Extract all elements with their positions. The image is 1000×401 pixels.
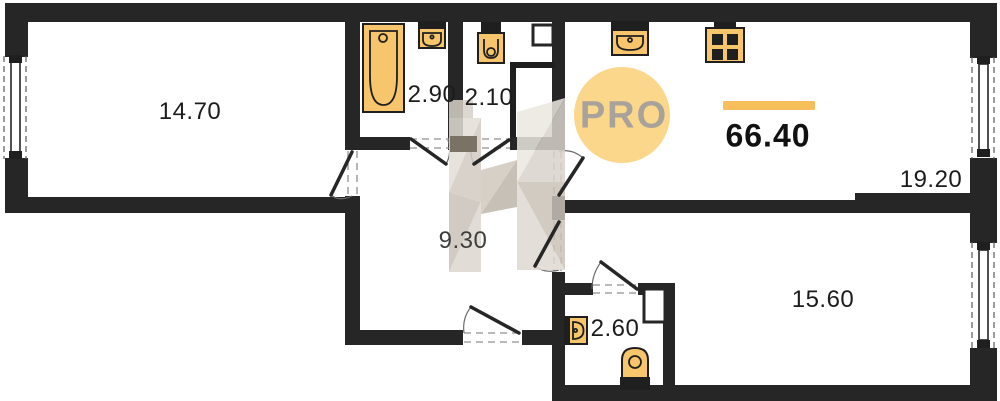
room-area-bathroom: 2.90 (408, 81, 457, 109)
room-area-wc2: 2.60 (591, 315, 640, 343)
pro-logo-text: PRO (580, 95, 668, 138)
accent-bar (723, 101, 815, 110)
stove-icon (706, 22, 744, 62)
window-living (4, 55, 26, 159)
floor-plan: 14.70 2.90 2.10 9.30 19.20 15.60 2.60 66… (0, 0, 1000, 401)
room-area-bedroom: 15.60 (792, 286, 855, 314)
room-area-hallway: 9.30 (439, 227, 488, 255)
door-post (450, 136, 477, 152)
window-bedroom (972, 242, 994, 349)
room-area-living: 14.70 (159, 98, 222, 126)
bathtub-icon (363, 24, 404, 112)
floor-plan-drawing (0, 0, 1000, 401)
total-area: 66.40 (725, 118, 810, 155)
kitchen-sink-icon (612, 22, 648, 55)
bath-sink-icon (419, 22, 445, 48)
wc2-sink-icon (565, 317, 587, 344)
toilet-icon (478, 22, 504, 63)
wc2-toilet-icon (620, 348, 650, 390)
room-area-wc: 2.10 (465, 84, 514, 112)
window-kitchen (972, 56, 994, 159)
room-area-kitchen: 19.20 (900, 166, 963, 194)
